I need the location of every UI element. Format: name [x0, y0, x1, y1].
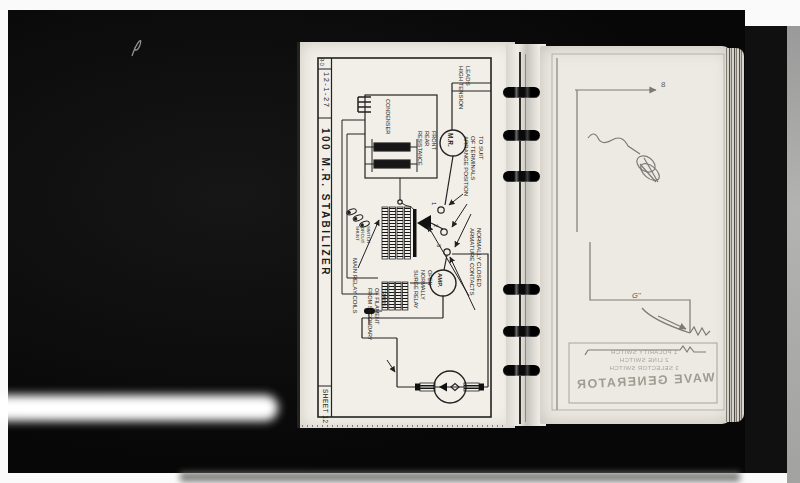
binder-ring — [503, 326, 540, 337]
label-high-tension-leads: HIGH TENSION LEADS — [456, 66, 471, 109]
handwritten-mark — [126, 34, 150, 62]
label-from-secondary: FROM SECONDARY OF FILAMENT TRANS. — [366, 288, 387, 340]
label-shunt-circuit-switch: SHUNT CIRCUIT SWITCH — [354, 226, 371, 243]
meter-amp-label: AMP. — [437, 273, 443, 287]
terminal-1-label: 1 — [431, 202, 437, 205]
right-page: 8 G'' 1 POLARITY SWITCH 2 LINE SWITCH 3 … — [540, 46, 732, 424]
sketch-g-label: G'' — [632, 291, 641, 300]
binder-ring — [503, 130, 540, 141]
terminal-3-label: 3 — [436, 244, 442, 247]
sheet-number: SHEET 12 — [320, 389, 331, 424]
page-stack-edge — [726, 48, 744, 422]
corner-mark: R-D — [319, 58, 324, 66]
label-armature-contacts: ARMATURE CONTACTS NORMALLY CLOSED — [467, 228, 482, 295]
bleedthrough-switch-list: 1 POLARITY SWITCH 2 LINE SWITCH 3 SELECT… — [570, 348, 718, 372]
left-page: R-D 12-1-27 100 M.R. STABILIZER SHEET 12… — [297, 42, 515, 428]
label-main-relay-coils: MAIN RELAY COILS — [352, 258, 358, 313]
label-surge-relay: SURGE RELAY NORMALLY OPEN — [412, 270, 433, 309]
scan-edge-strip — [787, 26, 800, 483]
scan-background-right — [745, 26, 787, 473]
stabilizer-schematic — [300, 42, 515, 428]
drawing-date: 12-1-27 — [320, 72, 332, 108]
meter-mr-label: M.R. — [447, 133, 454, 147]
bleedthrough-line: 2 LINE SWITCH — [570, 356, 718, 364]
figure-number: 8 — [661, 80, 665, 89]
label-resistance: RESISTANCE REAR FRONT — [416, 131, 437, 166]
scanned-notebook-photo: R-D 12-1-27 100 M.R. STABILIZER SHEET 12… — [0, 0, 800, 483]
drawing-title: 100 M.R. STABILIZER — [319, 128, 331, 277]
scan-bottom-shadow — [180, 472, 740, 482]
binder-ring — [503, 171, 540, 182]
label-arrange-terminals: ARRANGE POSITION OF TERMINALS TO SUIT — [461, 136, 484, 196]
bleedthrough-line: 1 POLARITY SWITCH — [570, 348, 718, 356]
binder-ring — [503, 87, 540, 98]
scan-glare — [0, 395, 278, 421]
label-condenser: CONDENSER — [385, 99, 391, 134]
page-edge-speckle — [300, 424, 505, 429]
binder-ring — [503, 365, 540, 376]
binder-ring — [503, 284, 540, 295]
terminal-2-label: 2 — [433, 224, 439, 227]
